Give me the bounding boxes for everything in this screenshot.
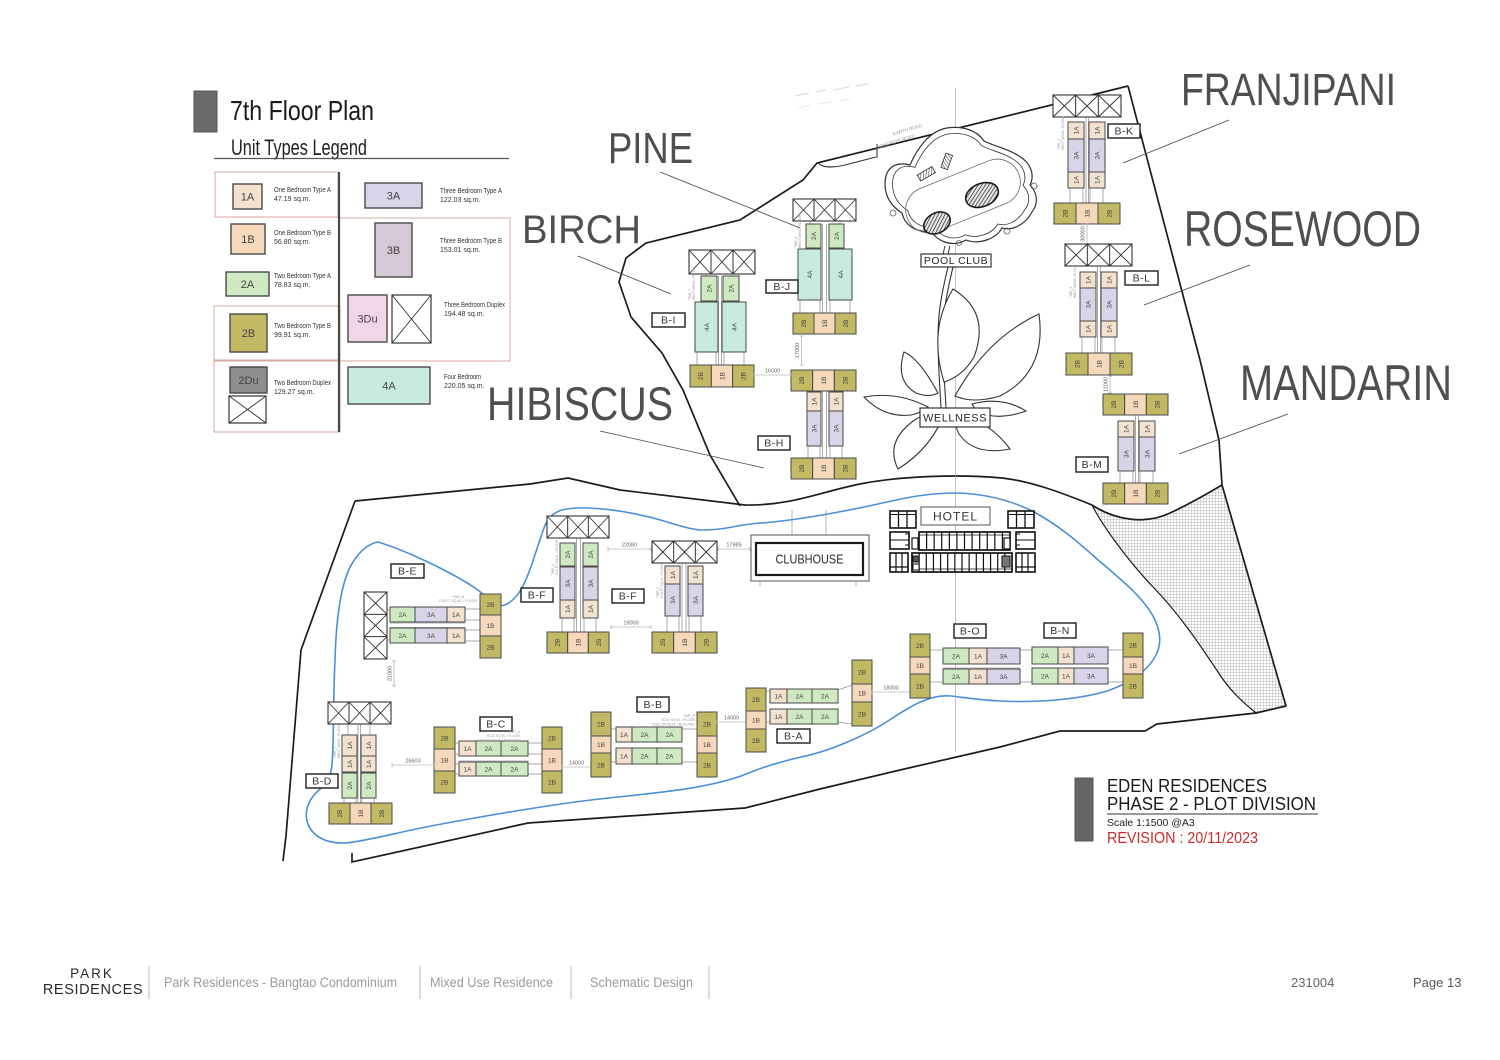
svg-text:1B: 1B [821,465,828,473]
svg-text:99.91 sq.m.: 99.91 sq.m. [274,332,311,339]
svg-text:2B: 2B [1062,210,1069,218]
svg-text:4A: 4A [807,270,814,279]
svg-text:2B: 2B [1106,210,1113,218]
svg-text:2B: 2B [858,711,866,718]
svg-text:3A: 3A [1094,151,1101,160]
svg-text:1A: 1A [366,741,373,750]
svg-text:2B: 2B [555,639,562,647]
svg-text:1A: 1A [833,397,840,406]
svg-text:Two Bedroom Type A: Two Bedroom Type A [274,271,331,280]
svg-text:2B: 2B [741,372,748,380]
svg-text:Three Bedroom Type B: Three Bedroom Type B [440,236,502,245]
svg-text:1B: 1B [719,372,726,380]
svg-text:Mixed Use Residence: Mixed Use Residence [430,975,553,990]
svg-text:Two Bedroom Type B: Two Bedroom Type B [274,321,331,330]
svg-text:2A: 2A [821,693,830,700]
svg-text:1A: 1A [565,604,572,613]
svg-text:Two Bedroom Duplex: Two Bedroom Duplex [274,378,331,387]
svg-text:2B: 2B [1155,490,1162,498]
svg-text:26603: 26603 [405,759,420,765]
svg-text:B-L: B-L [1133,273,1151,285]
svg-text:3A: 3A [693,595,700,604]
svg-text:2B: 2B [487,644,495,651]
svg-text:17000: 17000 [795,343,801,358]
svg-text:CLUBHOUSE: CLUBHOUSE [776,552,844,567]
svg-text:2A: 2A [399,612,408,619]
svg-text:5,862.34 SQ.M. / BUILDING: 5,862.34 SQ.M. / BUILDING [477,738,520,742]
svg-text:2B: 2B [698,372,705,380]
svg-text:Page 13: Page 13 [1413,975,1461,990]
svg-text:PARK: PARK [70,966,114,981]
svg-text:F15-F7 SQ.M. / FLOOR: F15-F7 SQ.M. / FLOOR [660,562,664,598]
svg-text:B-C: B-C [486,719,506,731]
svg-text:2B: 2B [548,735,556,742]
svg-text:16000: 16000 [765,369,780,375]
svg-text:1A: 1A [1073,126,1080,135]
svg-text:B-O: B-O [960,626,980,638]
svg-text:2B: 2B [597,762,605,769]
svg-text:2B: 2B [1118,360,1125,368]
svg-text:1B: 1B [858,690,866,697]
svg-text:2A: 2A [796,693,805,700]
svg-text:2A: 2A [821,714,830,721]
svg-text:2B: 2B [916,683,924,690]
svg-text:18000: 18000 [883,686,898,692]
svg-text:F15-F7 SQ.M. / FLOOR: F15-F7 SQ.M. / FLOOR [555,539,559,575]
svg-text:1A: 1A [1123,424,1130,433]
svg-text:2A: 2A [241,279,255,291]
svg-text:1A: 1A [1073,175,1080,184]
svg-text:2B: 2B [858,669,866,676]
svg-text:1B: 1B [1096,360,1103,368]
svg-text:1B: 1B [548,757,556,764]
svg-text:1B: 1B [821,377,828,385]
svg-text:2A: 2A [796,714,805,721]
svg-text:3A: 3A [1106,300,1113,309]
svg-text:Schematic Design: Schematic Design [590,975,693,990]
svg-text:1B: 1B [487,623,495,630]
svg-text:1A: 1A [452,612,461,619]
svg-text:2A: 2A [641,753,650,760]
svg-text:1A: 1A [588,604,595,613]
svg-text:3A: 3A [833,424,840,433]
svg-text:1B: 1B [1129,663,1137,670]
svg-text:2B: 2B [1129,683,1137,690]
svg-text:3A: 3A [1123,449,1130,458]
svg-text:4A: 4A [731,322,738,331]
svg-text:1B: 1B [703,742,711,749]
svg-text:1A: 1A [1062,653,1071,660]
svg-text:2B: 2B [799,465,806,473]
svg-text:1A: 1A [775,693,784,700]
svg-text:129.27 sq.m.: 129.27 sq.m. [274,389,315,396]
svg-text:1A: 1A [670,570,677,579]
svg-text:2B: 2B [1111,401,1118,409]
svg-text:HIBISCUS: HIBISCUS [487,377,673,430]
svg-text:2B: 2B [1155,401,1162,409]
svg-text:4A: 4A [704,322,711,331]
svg-text:2B: 2B [752,697,760,704]
svg-text:B-A: B-A [784,731,803,743]
svg-text:1A: 1A [464,746,473,753]
svg-text:1A: 1A [693,570,700,579]
svg-text:56.80 sq.m.: 56.80 sq.m. [274,239,311,246]
svg-text:1A: 1A [974,653,983,660]
svg-text:1A: 1A [1085,275,1092,284]
svg-text:194.48 sq.m.: 194.48 sq.m. [444,311,485,318]
svg-text:3A: 3A [1000,674,1009,681]
svg-text:220.05 sq.m.: 220.05 sq.m. [444,383,485,390]
svg-text:3A: 3A [1144,449,1151,458]
svg-text:BIRCH: BIRCH [522,208,641,252]
svg-text:2B: 2B [843,465,850,473]
svg-text:78.83 sq.m.: 78.83 sq.m. [274,282,311,289]
svg-text:2B: 2B [843,320,850,328]
svg-text:F15-F7 SQ.M. / FLOOR: F15-F7 SQ.M. / FLOOR [439,599,478,603]
svg-text:WEST WING / FLOOR: WEST WING / FLOOR [1073,264,1077,298]
svg-text:1B: 1B [1133,490,1140,498]
svg-text:1B: 1B [822,320,829,328]
svg-text:2B: 2B [704,639,711,647]
svg-text:WELLNESS: WELLNESS [923,413,987,425]
svg-text:2B: 2B [337,810,344,818]
svg-text:B-M: B-M [1082,459,1103,471]
svg-text:B-B: B-B [643,699,662,711]
svg-text:1A: 1A [366,759,373,768]
svg-text:3A: 3A [811,424,818,433]
svg-text:One Bedroom Type B: One Bedroom Type B [274,228,331,237]
svg-text:1A: 1A [241,191,255,203]
svg-text:POOL CLUB: POOL CLUB [924,255,988,267]
svg-text:1A: 1A [974,674,983,681]
svg-text:2A: 2A [811,231,818,240]
svg-text:2B: 2B [1074,360,1081,368]
svg-text:FRANJIPANI: FRANJIPANI [1181,64,1396,115]
svg-text:B-N: B-N [1050,625,1070,637]
svg-text:3A: 3A [1073,151,1080,160]
svg-text:3B: 3B [387,245,400,257]
svg-text:WEST WING / FLOOR: WEST WING / FLOOR [692,266,696,300]
svg-text:1B: 1B [441,757,449,764]
svg-text:RESIDENCES: RESIDENCES [43,982,143,998]
svg-text:22080: 22080 [622,543,637,549]
svg-text:2B: 2B [703,762,711,769]
svg-text:PINE: PINE [608,124,693,173]
svg-text:2A: 2A [1041,673,1050,680]
svg-text:2B: 2B [379,810,386,818]
svg-text:2B: 2B [916,643,924,650]
svg-text:EDEN RESIDENCES: EDEN RESIDENCES [1107,776,1267,796]
svg-text:14000: 14000 [569,761,584,767]
svg-text:2A: 2A [366,781,373,790]
svg-text:153.01 sq.m.: 153.01 sq.m. [440,247,481,254]
svg-text:B-H: B-H [764,438,784,450]
svg-text:4A: 4A [382,380,396,392]
svg-text:47.19 sq.m.: 47.19 sq.m. [274,196,311,203]
svg-text:1B: 1B [241,234,254,246]
svg-text:1A: 1A [1106,275,1113,284]
svg-text:1A: 1A [452,633,461,640]
svg-text:1A: 1A [1094,126,1101,135]
svg-text:Four Bedroom: Four Bedroom [444,372,481,381]
svg-text:3A: 3A [1000,653,1009,660]
svg-text:MANDARIN: MANDARIN [1240,355,1452,411]
svg-text:21000: 21000 [388,666,394,681]
svg-text:3A: 3A [565,579,572,588]
svg-text:2A: 2A [666,753,675,760]
svg-text:2A: 2A [485,746,494,753]
svg-text:1A: 1A [1085,324,1092,333]
svg-text:2B: 2B [441,779,449,786]
svg-text:1A: 1A [620,732,629,739]
svg-text:WEST WING / FLOOR: WEST WING / FLOOR [798,214,802,248]
svg-text:1A: 1A [464,766,473,773]
svg-text:2B: 2B [487,602,495,609]
svg-text:11000: 11000 [1104,377,1110,392]
svg-text:2B: 2B [843,377,850,385]
svg-text:1B: 1B [1133,401,1140,409]
svg-text:1A: 1A [1062,673,1071,680]
svg-text:1A: 1A [347,741,354,750]
svg-text:1A: 1A [1094,175,1101,184]
svg-text:3A: 3A [1087,653,1096,660]
svg-text:ROSEWOOD: ROSEWOOD [1184,201,1421,257]
svg-text:PHASE 2 - PLOT DIVISION: PHASE 2 - PLOT DIVISION [1107,794,1316,814]
svg-text:3A: 3A [588,579,595,588]
svg-text:2B: 2B [441,735,449,742]
svg-text:B-D: B-D [312,776,332,788]
svg-text:3A: 3A [1087,673,1096,680]
svg-text:2B: 2B [1111,490,1118,498]
svg-text:3Du: 3Du [357,313,377,325]
svg-text:30000: 30000 [1081,226,1087,241]
svg-text:Unit Types Legend: Unit Types Legend [231,135,367,160]
svg-text:WEST WING / FLOOR: WEST WING / FLOOR [1061,116,1065,150]
svg-text:WEST WING / FLOOR: WEST WING / FLOOR [337,724,341,758]
svg-text:1B: 1B [752,717,760,724]
svg-text:B-F: B-F [619,591,637,603]
svg-text:1B: 1B [358,810,365,818]
svg-text:2B: 2B [801,320,808,328]
svg-text:3A: 3A [427,633,436,640]
svg-text:2A: 2A [706,284,713,293]
svg-text:One Bedroom Type A: One Bedroom Type A [274,185,331,194]
svg-text:1A: 1A [347,759,354,768]
svg-text:3A: 3A [427,612,436,619]
svg-text:2A: 2A [588,550,595,559]
svg-text:1A: 1A [775,714,784,721]
svg-text:B-J: B-J [773,281,790,293]
svg-text:1B: 1B [916,663,924,670]
svg-text:2B: 2B [548,779,556,786]
svg-text:1B: 1B [575,639,582,647]
svg-text:2B: 2B [597,721,605,728]
svg-text:2A: 2A [1041,653,1050,660]
svg-text:1A: 1A [811,397,818,406]
svg-text:1A: 1A [620,753,629,760]
svg-text:2A: 2A [347,781,354,790]
svg-text:1A: 1A [1106,324,1113,333]
svg-text:1B: 1B [597,742,605,749]
svg-text:2B: 2B [799,377,806,385]
svg-text:B-E: B-E [398,566,417,578]
svg-text:3A: 3A [670,595,677,604]
svg-text:2A: 2A [399,633,408,640]
svg-text:17985: 17985 [726,543,741,549]
svg-text:2A: 2A [565,550,572,559]
svg-text:2A: 2A [952,653,961,660]
svg-text:2A: 2A [666,732,675,739]
svg-text:Scale 1:1500 @A3: Scale 1:1500 @A3 [1107,817,1195,829]
svg-text:B-F: B-F [528,590,546,602]
svg-text:1B: 1B [682,639,689,647]
svg-text:3A: 3A [1085,300,1092,309]
svg-text:B-I: B-I [661,315,676,327]
svg-text:7th Floor Plan: 7th Floor Plan [230,95,374,126]
svg-text:HOTEL: HOTEL [933,510,978,524]
svg-text:2A: 2A [485,766,494,773]
svg-text:Three Bedroom Type A: Three Bedroom Type A [440,186,502,195]
svg-text:2B: 2B [660,639,667,647]
svg-text:Park Residences - Bangtao Cond: Park Residences - Bangtao Condominium [164,975,397,990]
svg-text:2B: 2B [1129,642,1137,649]
svg-text:2A: 2A [952,674,961,681]
svg-text:1B: 1B [1084,210,1091,218]
svg-text:2B: 2B [752,738,760,745]
svg-text:2A: 2A [641,732,650,739]
svg-text:B-K: B-K [1114,126,1133,138]
svg-text:2B: 2B [242,328,255,340]
svg-text:2B: 2B [596,639,603,647]
svg-text:Three Bedroom Duplex: Three Bedroom Duplex [444,300,505,309]
svg-text:14000: 14000 [724,716,739,722]
svg-text:REVISION : 20/11/2023: REVISION : 20/11/2023 [1107,830,1258,847]
svg-text:2Du: 2Du [238,375,258,387]
svg-text:19000: 19000 [623,621,638,627]
svg-text:4A: 4A [838,270,845,279]
svg-text:2B: 2B [703,721,711,728]
svg-text:2A: 2A [728,284,735,293]
svg-text:2A: 2A [834,231,841,240]
svg-text:1A: 1A [1144,424,1151,433]
svg-text:2A: 2A [511,746,520,753]
svg-text:5,862.34 SQ.M. / BUILDING: 5,862.34 SQ.M. / BUILDING [652,722,695,726]
svg-text:3A: 3A [387,190,401,202]
svg-text:122.03 sq.m.: 122.03 sq.m. [440,197,481,204]
svg-text:231004: 231004 [1291,975,1334,990]
svg-text:2A: 2A [511,766,520,773]
